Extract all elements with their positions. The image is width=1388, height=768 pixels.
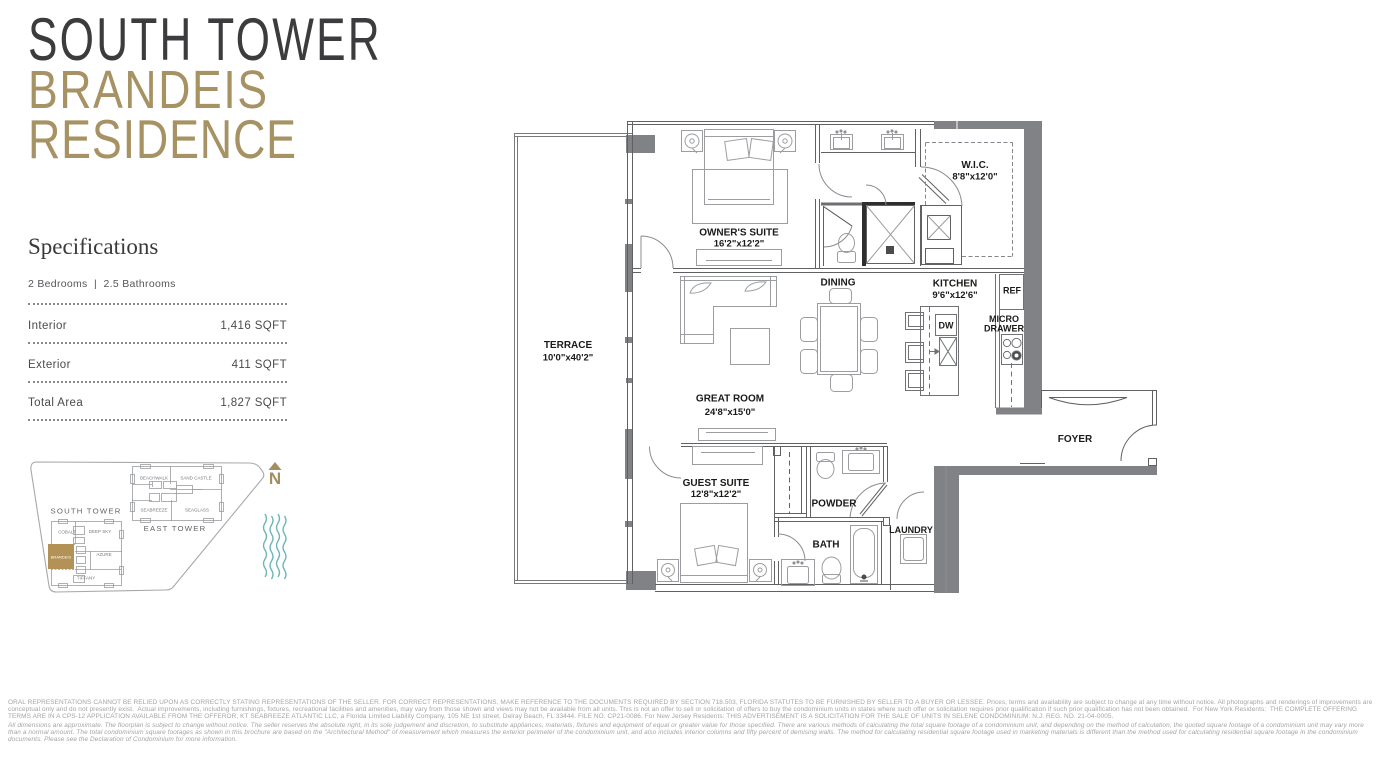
- svg-text:SEABREEZE: SEABREEZE: [140, 508, 167, 513]
- svg-text:9'6"x12'6": 9'6"x12'6": [932, 290, 977, 301]
- svg-text:LAUNDRY: LAUNDRY: [889, 525, 933, 535]
- svg-text:SEAGLASS: SEAGLASS: [185, 508, 209, 513]
- svg-text:16'2"x12'2": 16'2"x12'2": [714, 239, 765, 250]
- svg-text:DEEP SKY: DEEP SKY: [89, 529, 111, 534]
- svg-text:OWNER'S SUITE: OWNER'S SUITE: [699, 228, 779, 239]
- svg-text:FOYER: FOYER: [1058, 434, 1093, 445]
- svg-text:12'8"x12'2": 12'8"x12'2": [691, 489, 742, 500]
- svg-text:W.I.C.: W.I.C.: [961, 160, 988, 171]
- svg-text:KITCHEN: KITCHEN: [933, 279, 977, 290]
- svg-text:POWDER: POWDER: [812, 499, 858, 510]
- svg-text:SOUTH TOWER: SOUTH TOWER: [50, 507, 121, 516]
- svg-text:DW: DW: [939, 321, 954, 331]
- svg-text:AZURE: AZURE: [96, 552, 111, 557]
- svg-text:REF: REF: [1003, 286, 1022, 296]
- svg-text:BRANDEIS: BRANDEIS: [51, 555, 72, 560]
- svg-text:GREAT ROOM: GREAT ROOM: [696, 394, 764, 405]
- svg-text:BEACHWALK: BEACHWALK: [140, 476, 168, 481]
- svg-text:24'8"x15'0": 24'8"x15'0": [705, 407, 756, 418]
- svg-text:MICRO: MICRO: [989, 314, 1019, 324]
- svg-text:DINING: DINING: [821, 278, 856, 289]
- svg-text:DRAWER: DRAWER: [984, 324, 1024, 334]
- svg-text:10'0"x40'2": 10'0"x40'2": [543, 353, 594, 364]
- svg-text:BATH: BATH: [812, 540, 839, 551]
- svg-text:SAND CASTLE: SAND CASTLE: [180, 476, 211, 481]
- svg-text:8'8"x12'0": 8'8"x12'0": [952, 172, 997, 183]
- svg-text:COBALT: COBALT: [58, 530, 76, 535]
- svg-text:EAST TOWER: EAST TOWER: [144, 524, 207, 533]
- svg-text:GUEST SUITE: GUEST SUITE: [683, 478, 750, 489]
- svg-text:TIFFANY: TIFFANY: [77, 576, 96, 581]
- svg-text:N: N: [269, 469, 281, 488]
- svg-text:TERRACE: TERRACE: [544, 340, 593, 351]
